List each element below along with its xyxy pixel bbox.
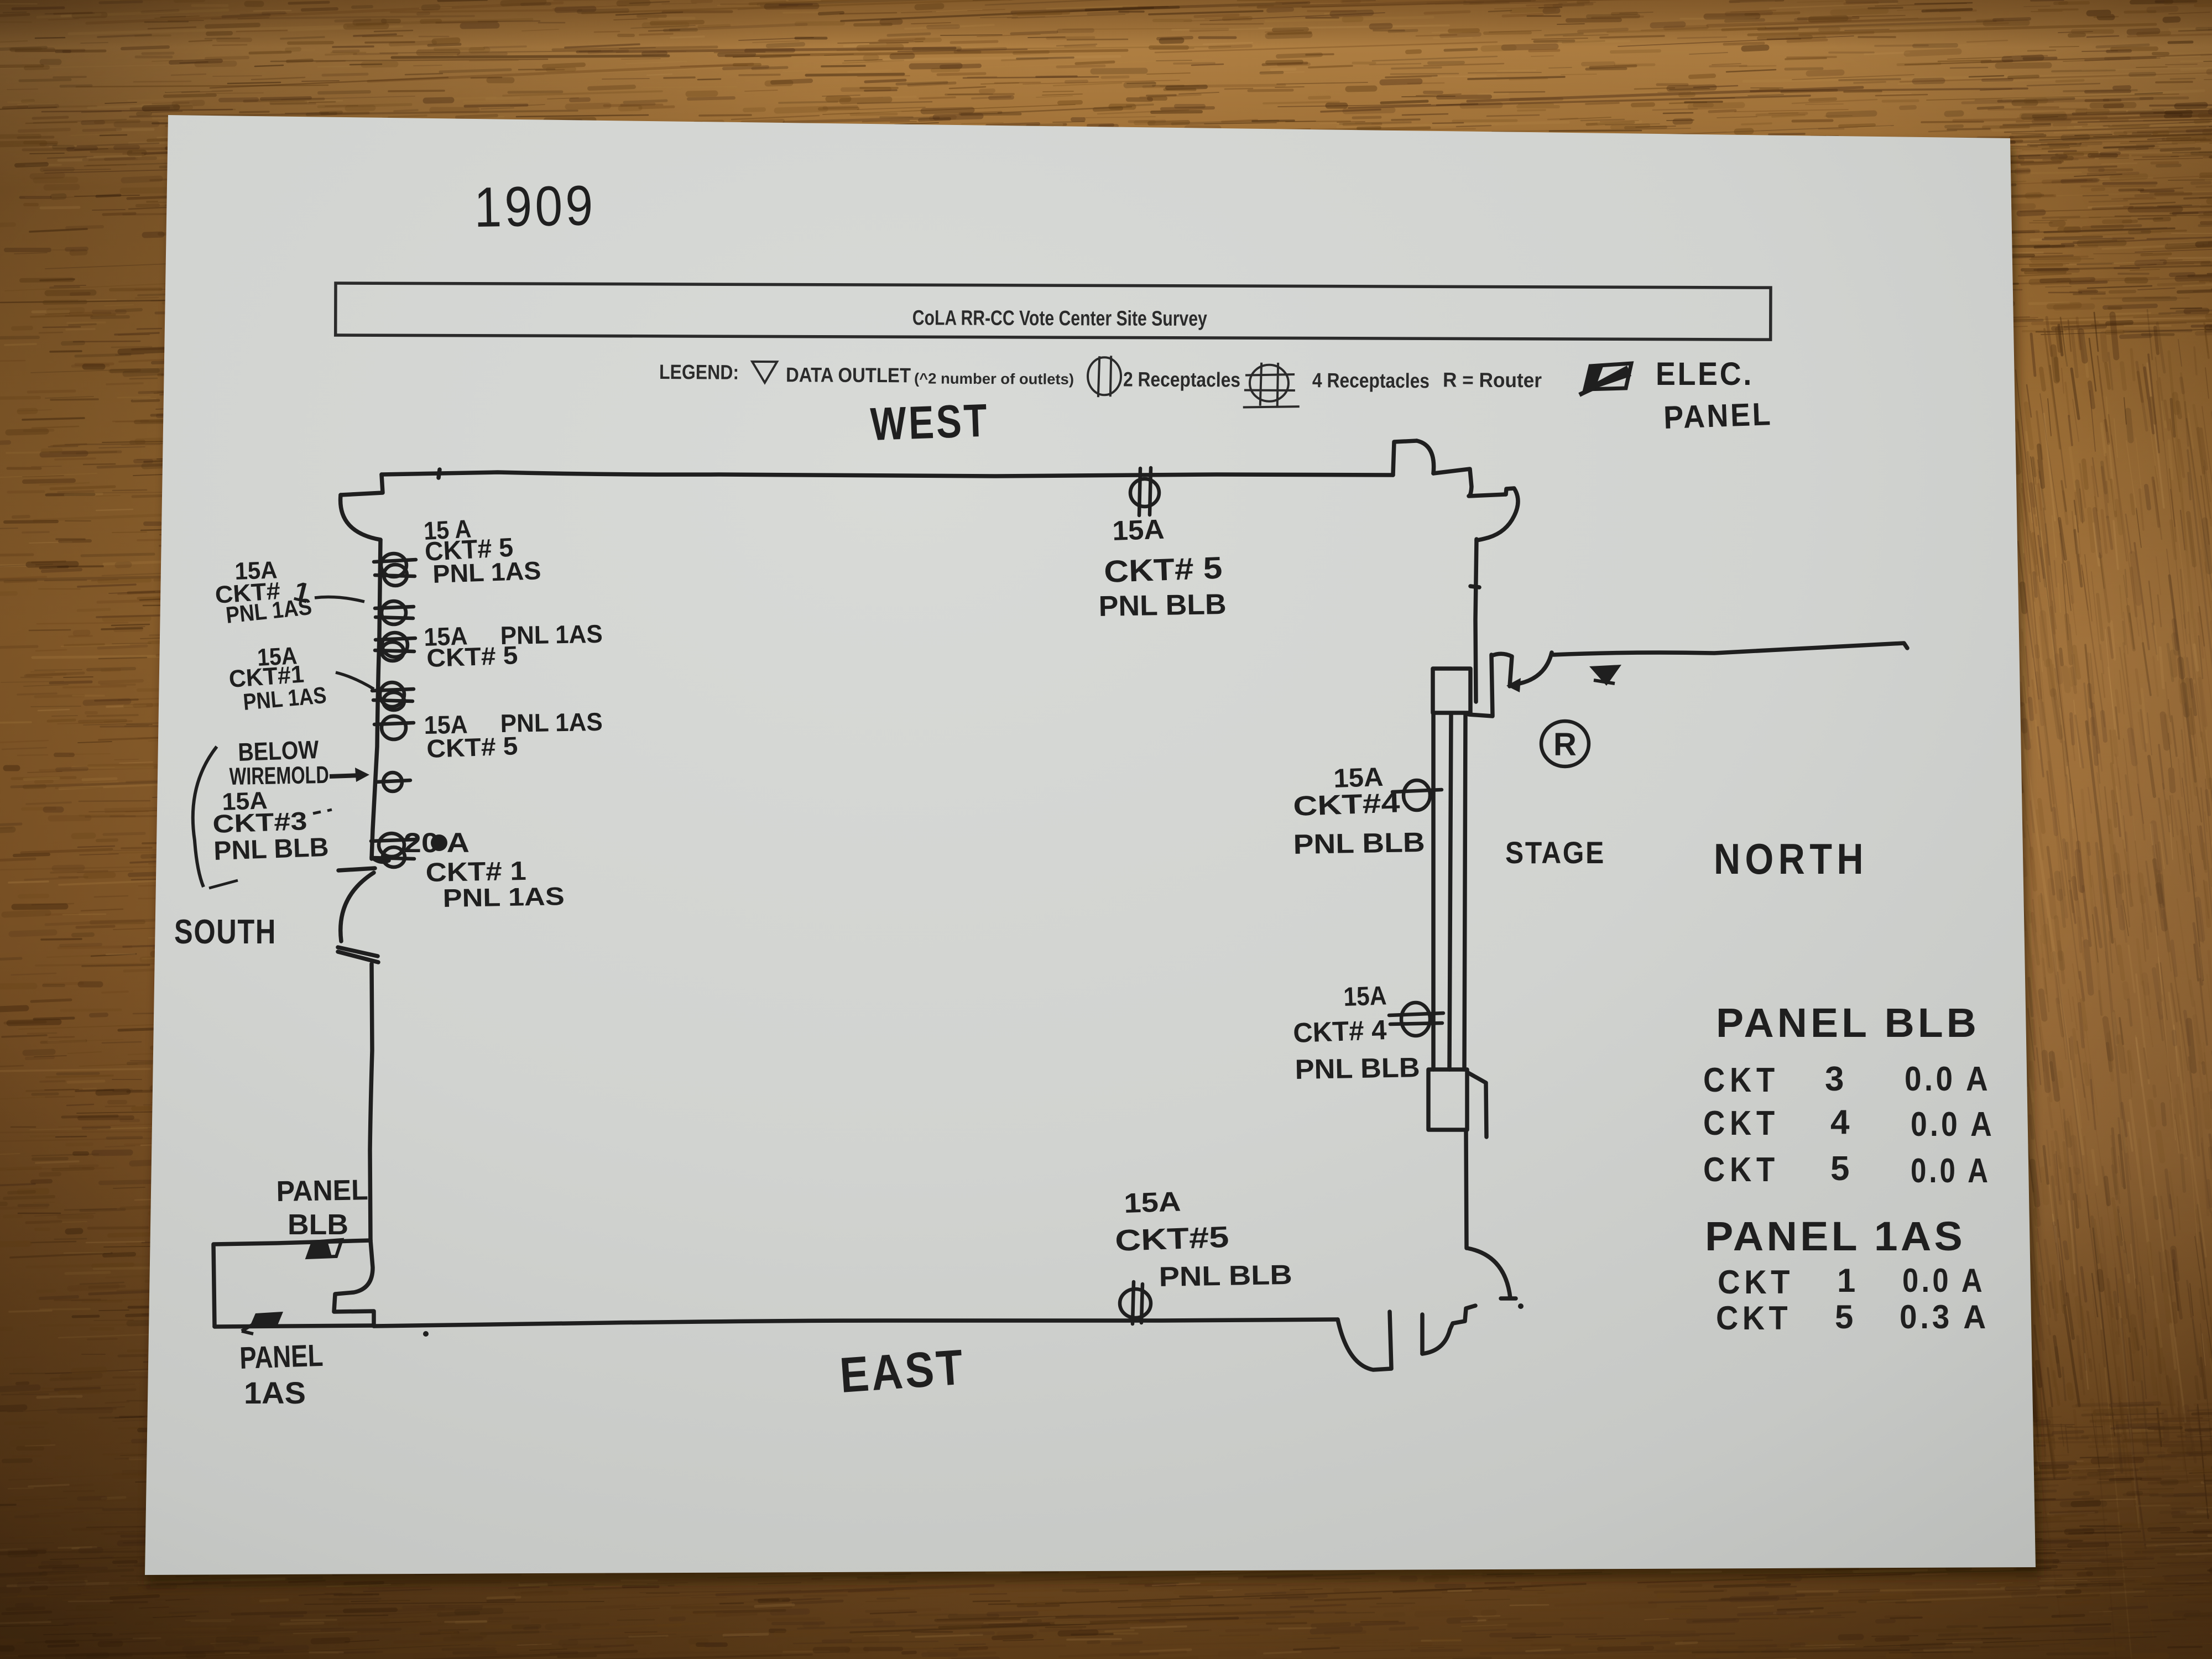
svg-text:PNL 1AS: PNL 1AS xyxy=(442,881,565,912)
svg-text:5: 5 xyxy=(1835,1298,1853,1335)
svg-text:PNL 1AS: PNL 1AS xyxy=(432,556,542,588)
svg-text:PANEL: PANEL xyxy=(1663,396,1773,436)
svg-text:PNL BLB: PNL BLB xyxy=(1159,1259,1292,1292)
svg-text:PNL BLB: PNL BLB xyxy=(1295,1052,1420,1085)
svg-text:0.0 A: 0.0 A xyxy=(1911,1105,1995,1144)
svg-text:1909: 1909 xyxy=(473,174,596,239)
svg-text:1: 1 xyxy=(1837,1262,1855,1299)
svg-text:PNL BLB: PNL BLB xyxy=(213,833,330,866)
svg-text:PANEL 1AS: PANEL 1AS xyxy=(1705,1213,1965,1259)
svg-text:(^2 number of outlets): (^2 number of outlets) xyxy=(914,370,1074,388)
svg-text:ELEC.: ELEC. xyxy=(1656,356,1754,392)
svg-text:WIREMOLD: WIREMOLD xyxy=(229,761,329,790)
svg-text:0.0 A: 0.0 A xyxy=(1911,1152,1991,1190)
svg-text:CKT: CKT xyxy=(1716,1300,1792,1337)
svg-text:CKT# 5: CKT# 5 xyxy=(426,731,519,763)
svg-text:0.3 A: 0.3 A xyxy=(1900,1298,1989,1335)
svg-text:EAST: EAST xyxy=(838,1339,967,1404)
svg-text:4 Receptacles: 4 Receptacles xyxy=(1312,369,1430,392)
svg-text:15A: 15A xyxy=(1112,514,1165,546)
svg-text:CoLA RR-CC Vote Center Site Su: CoLA RR-CC Vote Center Site Survey xyxy=(912,306,1207,331)
svg-text:3: 3 xyxy=(1825,1060,1844,1098)
svg-text:DATA OUTLET: DATA OUTLET xyxy=(786,363,911,387)
svg-text:5: 5 xyxy=(1830,1150,1849,1188)
svg-text:0.0 A: 0.0 A xyxy=(1902,1262,1985,1299)
svg-text:CKT: CKT xyxy=(1703,1151,1780,1189)
svg-text:LEGEND:: LEGEND: xyxy=(659,361,739,384)
svg-text:SOUTH: SOUTH xyxy=(174,913,276,951)
svg-text:R: R xyxy=(1553,727,1577,763)
svg-text:4: 4 xyxy=(1830,1103,1850,1141)
svg-text:R = Router: R = Router xyxy=(1443,368,1542,392)
svg-text:NORTH: NORTH xyxy=(1714,834,1868,883)
svg-text:2 Receptacles: 2 Receptacles xyxy=(1123,368,1240,391)
svg-text:PNL BLB: PNL BLB xyxy=(1293,827,1425,860)
svg-text:CKT#4: CKT#4 xyxy=(1292,787,1400,822)
svg-text:BLB: BLB xyxy=(288,1209,348,1241)
svg-text:CKT# 5: CKT# 5 xyxy=(426,640,519,672)
svg-text:CKT#5: CKT#5 xyxy=(1114,1220,1229,1258)
svg-text:WEST: WEST xyxy=(869,394,990,450)
svg-text:PANEL BLB: PANEL BLB xyxy=(1716,1000,1980,1046)
svg-text:CKT: CKT xyxy=(1703,1104,1780,1142)
svg-text:CKT# 5: CKT# 5 xyxy=(1103,550,1223,589)
svg-text:CKT: CKT xyxy=(1703,1061,1780,1099)
svg-text:STAGE: STAGE xyxy=(1505,835,1605,870)
svg-text:15A: 15A xyxy=(1343,981,1387,1012)
svg-text:CKT# 4: CKT# 4 xyxy=(1292,1014,1387,1048)
svg-text:CKT: CKT xyxy=(1718,1264,1794,1301)
svg-text:PANEL: PANEL xyxy=(276,1174,368,1208)
svg-text:0.0 A: 0.0 A xyxy=(1905,1060,1991,1098)
svg-text:1AS: 1AS xyxy=(244,1375,306,1410)
svg-text:PNL BLB: PNL BLB xyxy=(1098,588,1227,623)
svg-text:PANEL: PANEL xyxy=(239,1338,324,1375)
svg-text:15A: 15A xyxy=(1123,1186,1181,1219)
